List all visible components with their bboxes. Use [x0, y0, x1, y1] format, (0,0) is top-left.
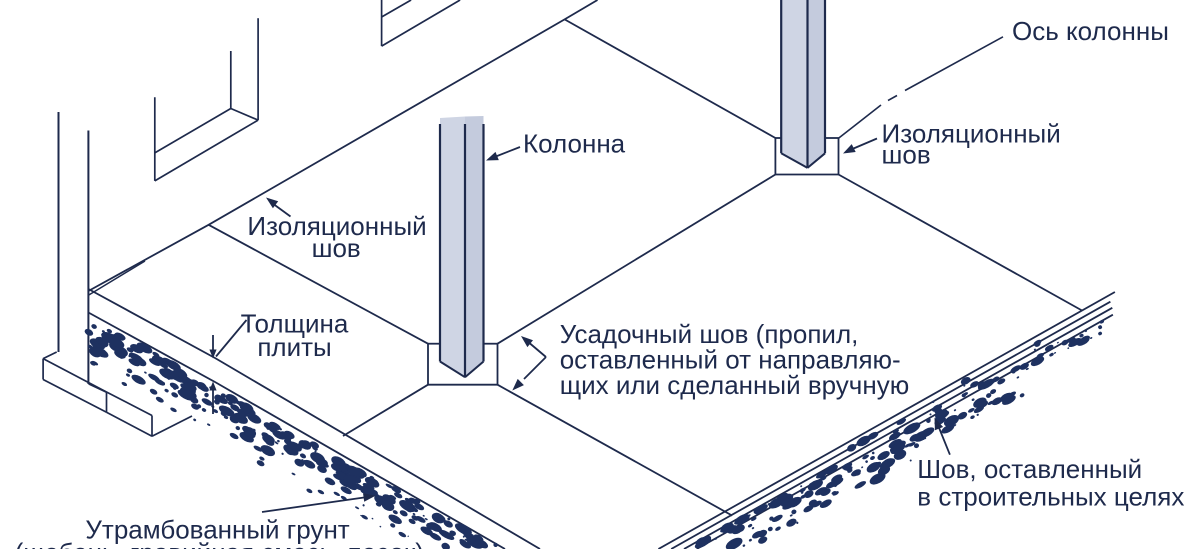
svg-text:щих или сделанный вручную: щих или сделанный вручную: [560, 370, 910, 400]
svg-text:(щебень, гравийная смесь, песо: (щебень, гравийная смесь, песок): [15, 538, 424, 549]
svg-text:Шов, оставленный: Шов, оставленный: [917, 454, 1142, 484]
svg-text:Ось колонны: Ось колонны: [1012, 16, 1169, 46]
svg-text:в строительных целях: в строительных целях: [917, 481, 1184, 511]
svg-text:плиты: плиты: [257, 332, 331, 362]
svg-text:шов: шов: [882, 140, 931, 170]
svg-text:Колонна: Колонна: [523, 129, 626, 159]
svg-text:шов: шов: [312, 233, 361, 263]
